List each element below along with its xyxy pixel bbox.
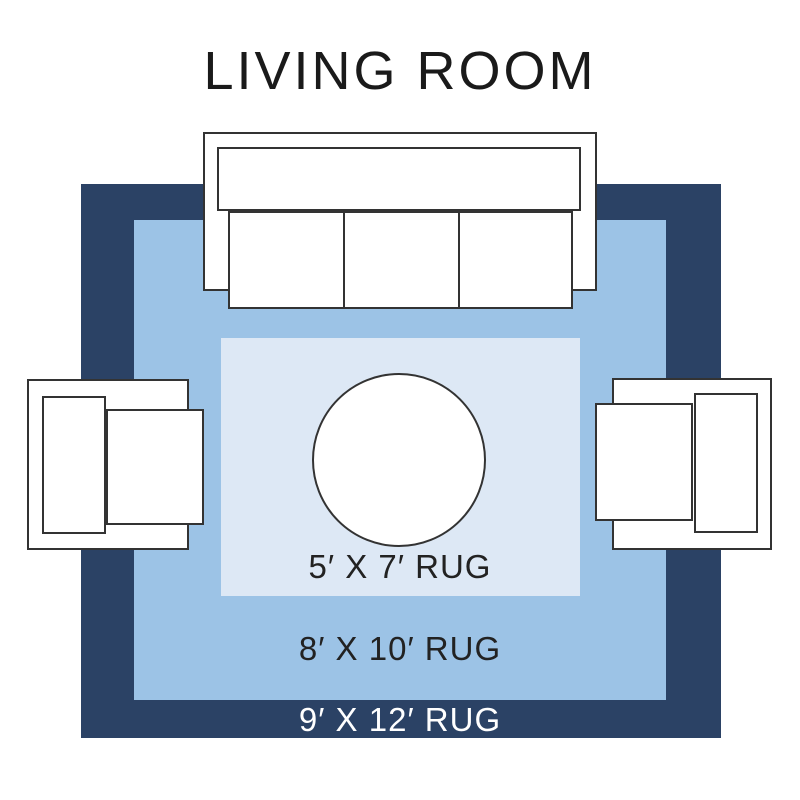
sofa-seat-cushion-1 <box>228 211 345 309</box>
right-armchair-back-cushion <box>694 393 758 533</box>
rug-8x10-label: 8′ X 10′ RUG <box>0 630 800 668</box>
living-room-rug-diagram: LIVING ROOM 5′ X 7′ RUG 8′ X 10′ RUG 9′ … <box>0 0 800 800</box>
sofa-seat-cushion-2 <box>343 211 460 309</box>
sofa-back-cushion <box>217 147 581 211</box>
rug-9x12-label: 9′ X 12′ RUG <box>0 701 800 739</box>
sofa-seat-cushion-3 <box>458 211 573 309</box>
round-coffee-table <box>312 373 486 547</box>
left-armchair-seat-cushion <box>106 409 204 525</box>
right-armchair-seat-cushion <box>595 403 693 521</box>
page-title: LIVING ROOM <box>0 42 800 101</box>
rug-5x7-label: 5′ X 7′ RUG <box>0 548 800 586</box>
left-armchair-back-cushion <box>42 396 106 534</box>
